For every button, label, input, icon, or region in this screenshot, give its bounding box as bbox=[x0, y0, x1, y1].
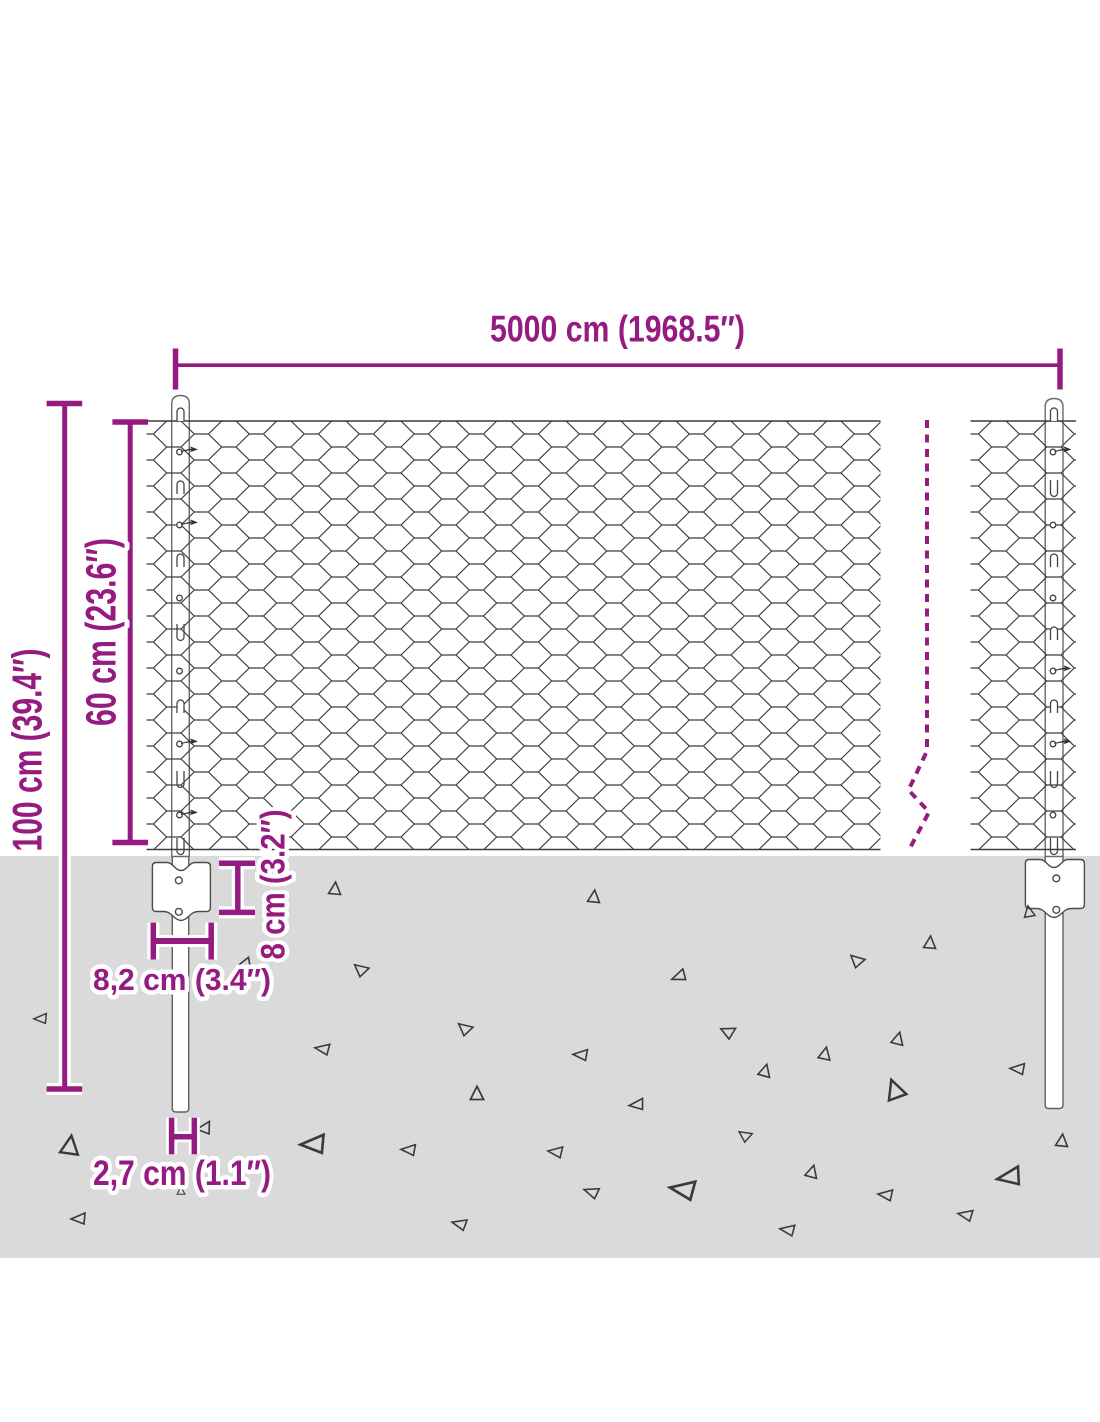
svg-text:5000 cm (1968.5″): 5000 cm (1968.5″) bbox=[490, 309, 745, 350]
svg-text:8,2 cm (3.4″): 8,2 cm (3.4″) bbox=[93, 962, 271, 997]
svg-text:60 cm (23.6″): 60 cm (23.6″) bbox=[78, 538, 126, 726]
svg-text:2,7 cm (1.1″): 2,7 cm (1.1″) bbox=[93, 1154, 271, 1193]
svg-text:100 cm (39.4″): 100 cm (39.4″) bbox=[4, 649, 51, 852]
svg-text:8 cm (3.2″): 8 cm (3.2″) bbox=[255, 810, 293, 960]
